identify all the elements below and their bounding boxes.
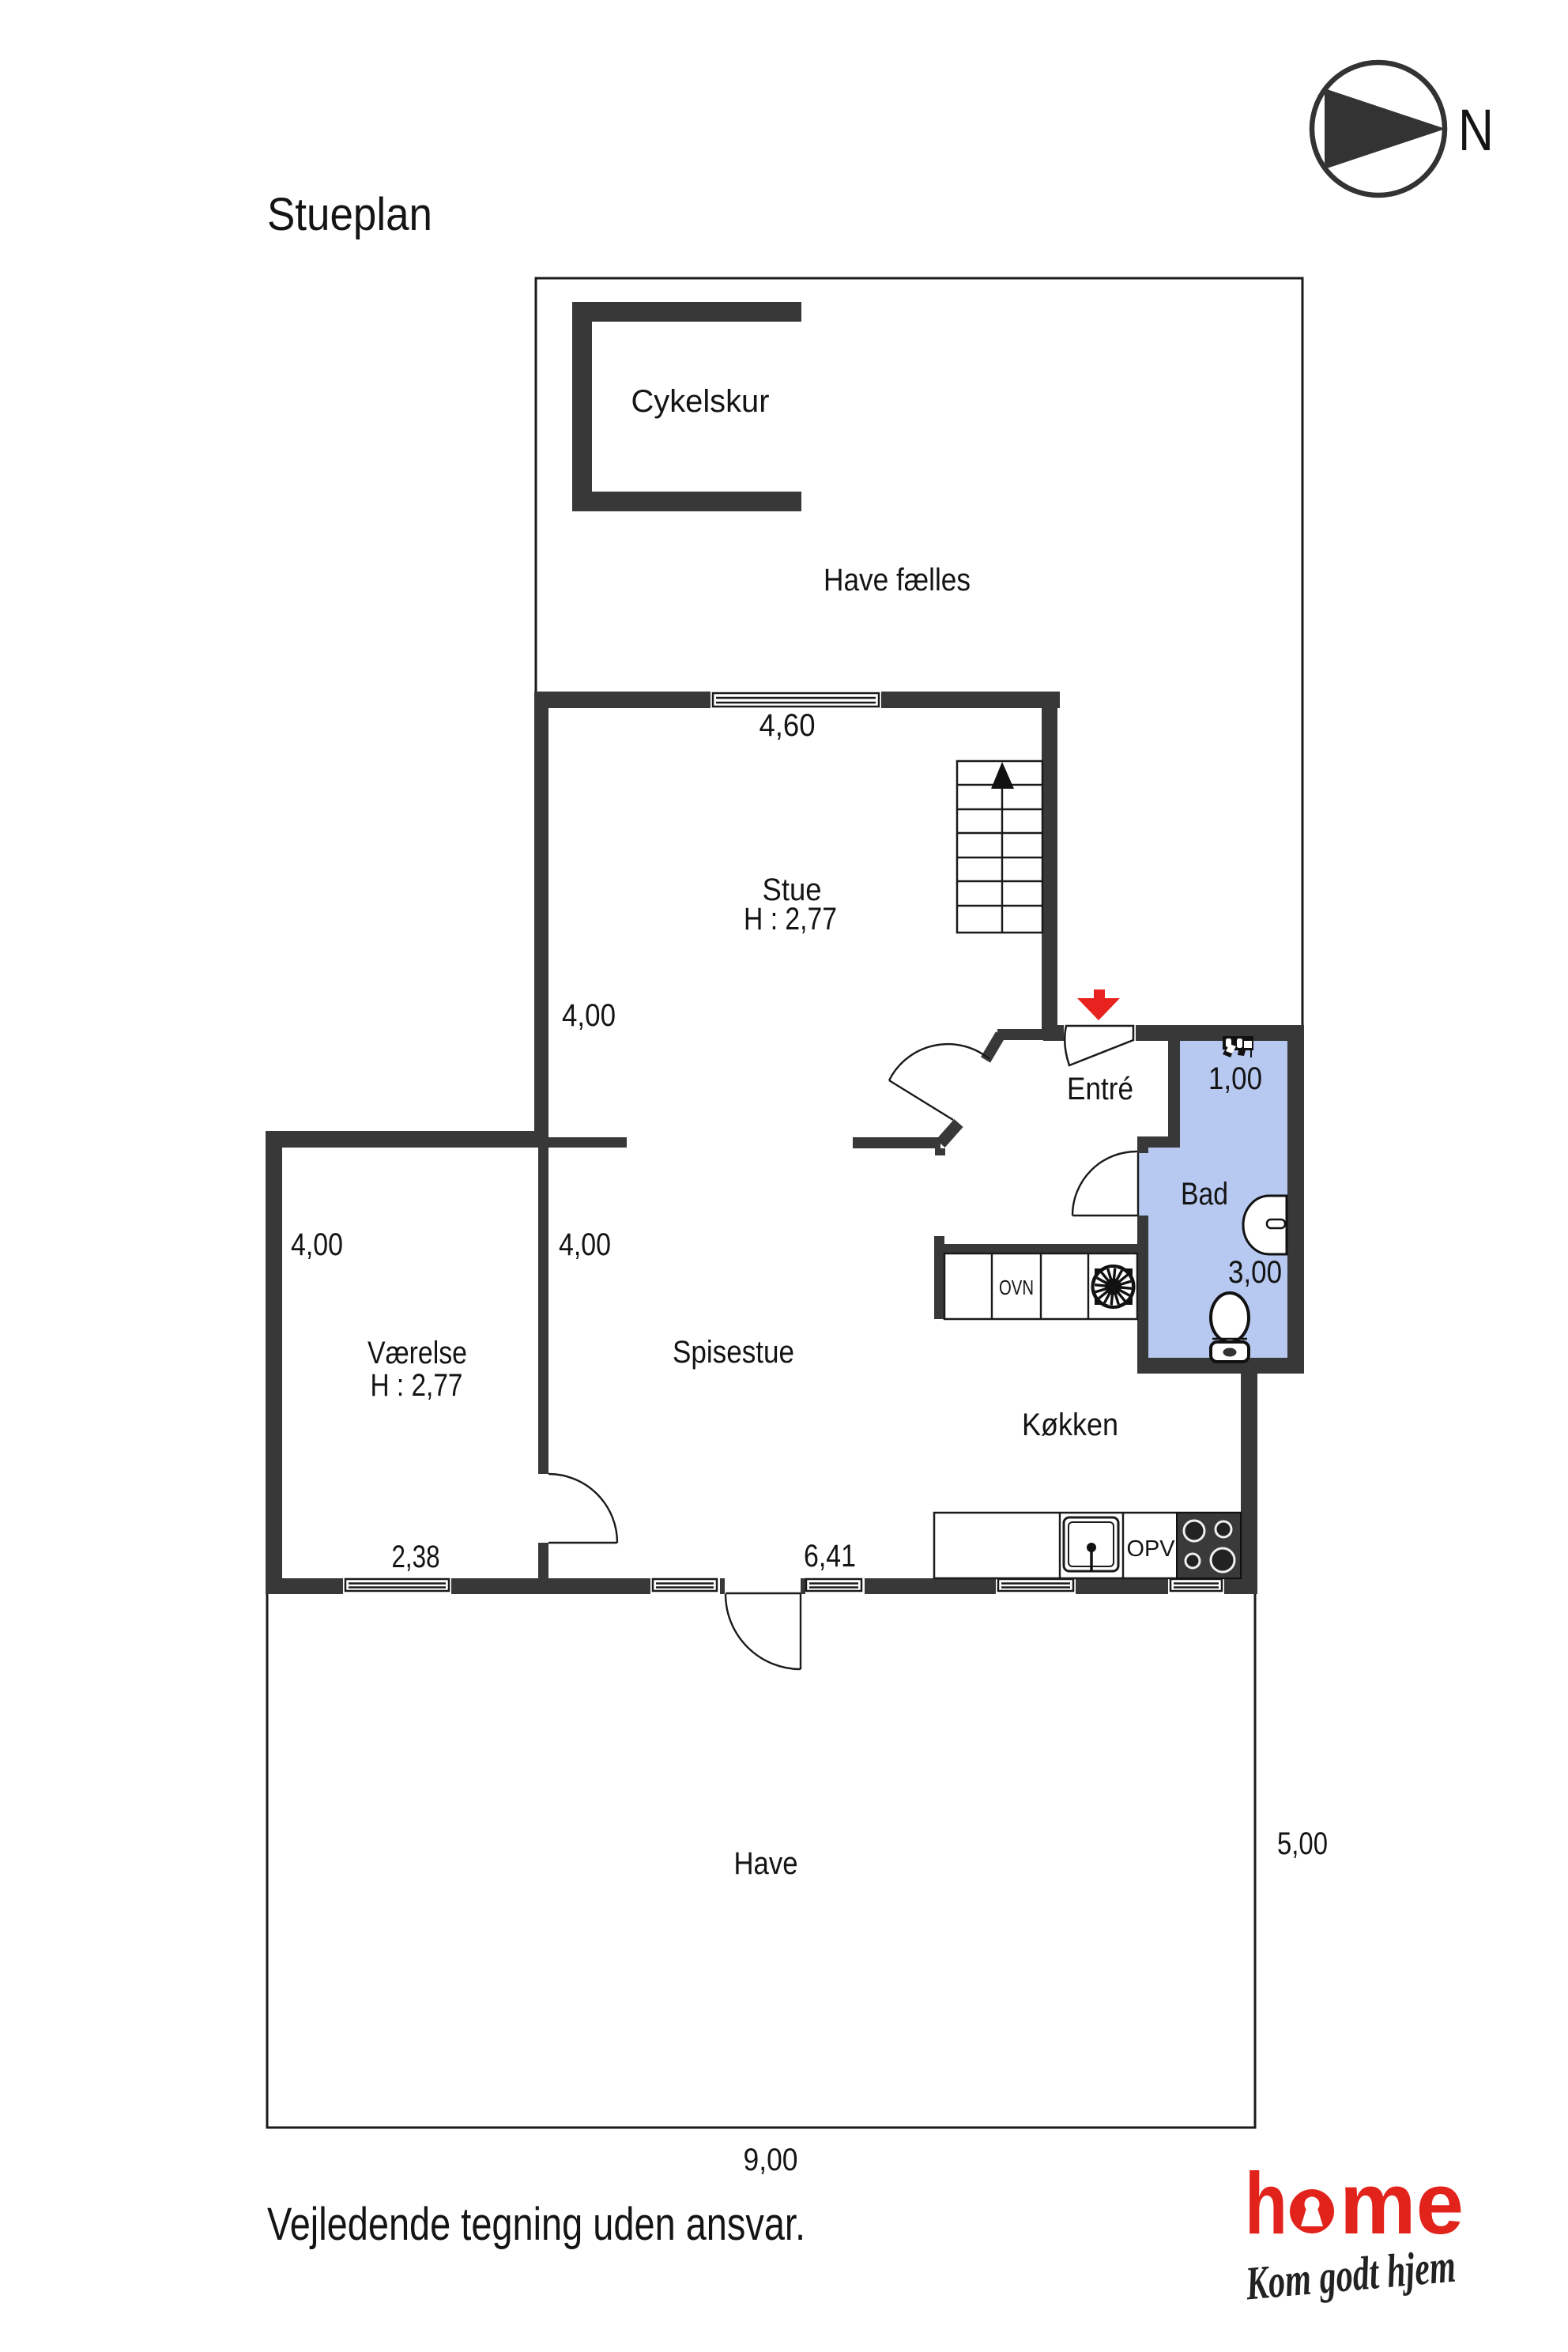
svg-text:4,60: 4,60 [759, 708, 816, 743]
svg-text:6,41: 6,41 [804, 1539, 856, 1574]
svg-text:OPV: OPV [1127, 1536, 1176, 1562]
svg-text:4,00: 4,00 [291, 1227, 343, 1262]
svg-text:Vejledende tegning uden ansvar: Vejledende tegning uden ansvar. [267, 2199, 805, 2250]
svg-text:4,00: 4,00 [562, 998, 616, 1033]
svg-text:Have fælles: Have fælles [824, 563, 971, 597]
svg-text:Cykelskur: Cykelskur [631, 384, 770, 419]
svg-text:H : 2,77: H : 2,77 [744, 902, 837, 937]
svg-text:OVN: OVN [999, 1276, 1034, 1299]
svg-text:H : 2,77: H : 2,77 [371, 1368, 463, 1403]
svg-text:Bad: Bad [1181, 1177, 1228, 1212]
svg-text:1,00: 1,00 [1208, 1061, 1262, 1096]
svg-text:3,00: 3,00 [1228, 1255, 1282, 1290]
svg-text:Entré: Entré [1067, 1072, 1133, 1106]
svg-text:N: N [1458, 97, 1494, 163]
svg-text:2,38: 2,38 [392, 1540, 440, 1574]
svg-text:Værelse: Værelse [367, 1336, 467, 1370]
svg-text:Køkken: Køkken [1022, 1408, 1118, 1442]
svg-text:h: h [1245, 2155, 1287, 2252]
svg-text:Spisestue: Spisestue [673, 1335, 794, 1370]
svg-text:4,00: 4,00 [559, 1227, 611, 1262]
svg-text:me: me [1340, 2155, 1464, 2252]
svg-text:Stueplan: Stueplan [267, 189, 432, 240]
svg-text:Have: Have [734, 1846, 798, 1881]
svg-text:9,00: 9,00 [744, 2143, 798, 2177]
svg-text:5,00: 5,00 [1277, 1826, 1328, 1861]
